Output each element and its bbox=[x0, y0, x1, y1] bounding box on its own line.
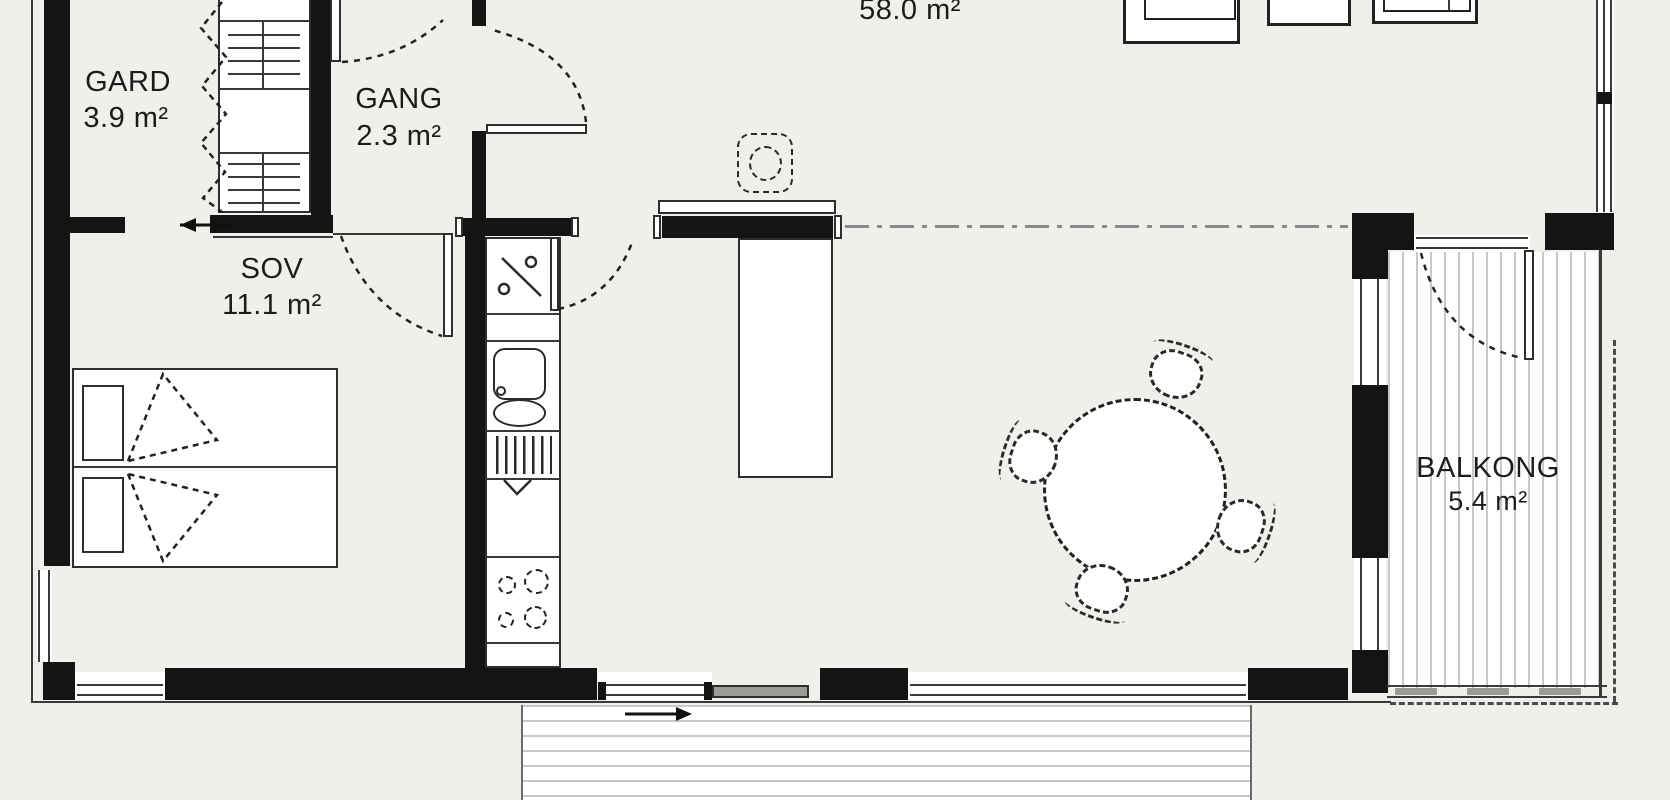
burner bbox=[524, 569, 549, 594]
window-frame-line bbox=[1610, 0, 1612, 212]
threshold-line bbox=[1416, 237, 1528, 239]
door-jamb-cap bbox=[834, 215, 842, 239]
boundary-dashed-line bbox=[1390, 702, 1618, 705]
door-leaf bbox=[486, 124, 587, 134]
window-frame-line bbox=[77, 684, 163, 686]
door-jamb-cap bbox=[455, 217, 463, 237]
balcony-rail bbox=[1387, 685, 1607, 687]
balcony-left-wall bbox=[1352, 385, 1388, 558]
wardrobe-shelf bbox=[228, 47, 300, 49]
pillow bbox=[82, 385, 124, 461]
wardrobe bbox=[218, 0, 311, 213]
bottom-wall bbox=[1248, 668, 1348, 700]
sliding-door-jamb bbox=[704, 682, 712, 700]
wardrobe-shelf-divider bbox=[220, 88, 309, 90]
door-jamb-cap bbox=[653, 215, 661, 239]
left-wall bbox=[44, 0, 70, 566]
bottom-wall-outer-face bbox=[31, 701, 1391, 703]
bed-divider bbox=[74, 466, 336, 468]
boundary-dashed-line bbox=[1613, 340, 1616, 702]
door-jamb-cap bbox=[571, 217, 579, 237]
balcony-rail-posts bbox=[1395, 688, 1600, 695]
wardrobe-shelf bbox=[228, 189, 300, 191]
door-arc bbox=[558, 240, 633, 309]
balcony-left-wall bbox=[1352, 245, 1388, 279]
floor-plan: GARD 3.9 m² GANG 2.3 m² SOV 11.1 m² 58.0… bbox=[0, 0, 1670, 800]
room-label-gard: GARD bbox=[85, 66, 171, 99]
bottom-wall bbox=[165, 668, 597, 700]
left-wall-outer-face bbox=[31, 0, 33, 703]
door-leaf bbox=[330, 0, 341, 62]
burner bbox=[498, 576, 516, 594]
door-leaf bbox=[443, 233, 453, 337]
balcony-rail bbox=[1387, 696, 1607, 698]
window-frame-line bbox=[48, 570, 50, 662]
window-frame-line bbox=[1360, 558, 1362, 650]
dining-table bbox=[1043, 398, 1227, 582]
side-table bbox=[1267, 0, 1351, 26]
hood-symbol-circle bbox=[749, 146, 782, 181]
room-area-living: 58.0 m² bbox=[859, 0, 961, 27]
counter-section-line bbox=[487, 430, 559, 432]
wardrobe-bottom-wall bbox=[210, 215, 333, 233]
bottom-wall bbox=[820, 668, 908, 700]
wardrobe-shelf bbox=[228, 73, 300, 75]
window bbox=[1354, 558, 1386, 650]
door-leaf bbox=[1524, 250, 1534, 360]
counter-section-line bbox=[487, 556, 559, 558]
counter-section-line bbox=[487, 340, 559, 342]
window-frame-line bbox=[1603, 0, 1605, 212]
wardrobe-center-post bbox=[262, 20, 264, 90]
window-frame-line bbox=[910, 694, 1246, 696]
gard-gang-wall bbox=[311, 0, 331, 215]
counter-section-line bbox=[487, 313, 559, 315]
counter-section-line bbox=[487, 478, 559, 480]
door-arc bbox=[489, 29, 586, 122]
terrace-decking bbox=[521, 705, 1252, 800]
gard-entry-stub bbox=[65, 217, 125, 233]
window-frame-line bbox=[38, 570, 40, 662]
sink-round-basin bbox=[493, 399, 546, 427]
room-label-balkong: BALKONG bbox=[1416, 452, 1560, 485]
window-frame-line bbox=[600, 694, 710, 696]
room-area-gard: 3.9 m² bbox=[83, 102, 168, 135]
dishwasher bbox=[496, 436, 552, 474]
window-frame-line bbox=[77, 694, 163, 696]
window-mullion bbox=[1597, 92, 1612, 104]
door-arc bbox=[341, 236, 442, 336]
wardrobe-shelf-divider bbox=[220, 152, 309, 154]
island-countertop bbox=[658, 200, 836, 214]
door-arc bbox=[342, 20, 443, 62]
door-leaf bbox=[550, 237, 559, 311]
balcony-left-wall-corner bbox=[1352, 650, 1388, 693]
armchair bbox=[1123, 0, 1240, 44]
bottom-left-corner bbox=[43, 662, 75, 700]
sliding-door-panel bbox=[712, 685, 809, 698]
island-half-wall bbox=[662, 216, 833, 238]
wardrobe-shelf bbox=[228, 202, 300, 204]
wardrobe-shelf bbox=[228, 34, 300, 36]
gang-living-wall bbox=[472, 131, 486, 218]
window-frame-line bbox=[1360, 279, 1362, 385]
wardrobe-shelf bbox=[228, 60, 300, 62]
gang-living-wall-stub bbox=[472, 0, 486, 26]
wardrobe-shelf-divider bbox=[220, 20, 309, 22]
balcony-top-wall bbox=[1545, 213, 1614, 250]
armchair bbox=[1372, 0, 1478, 24]
pillow bbox=[82, 477, 124, 553]
room-area-gang: 2.3 m² bbox=[356, 120, 441, 153]
room-area-sov: 11.1 m² bbox=[222, 289, 322, 322]
threshold-line bbox=[1416, 247, 1528, 249]
threshold-line bbox=[333, 233, 445, 235]
sliding-door-jamb bbox=[598, 682, 606, 700]
balcony-right-edge bbox=[1599, 250, 1602, 698]
window-frame-line bbox=[1377, 558, 1379, 650]
threshold-line bbox=[213, 236, 333, 238]
window bbox=[1354, 279, 1386, 385]
dining-chair bbox=[1134, 325, 1222, 410]
ceiling-break-line bbox=[845, 225, 1348, 228]
window-frame-line bbox=[910, 684, 1246, 686]
burner bbox=[524, 606, 547, 629]
room-label-gang: GANG bbox=[355, 83, 442, 116]
sov-kitchen-wall bbox=[465, 233, 485, 670]
window-frame-line bbox=[600, 684, 710, 686]
wardrobe-shelf bbox=[228, 163, 300, 165]
room-label-sov: SOV bbox=[241, 253, 304, 286]
room-area-balkong: 5.4 m² bbox=[1448, 486, 1528, 517]
kitchen-island bbox=[738, 238, 833, 478]
window-frame-line bbox=[1377, 279, 1379, 385]
burner bbox=[498, 612, 514, 628]
sink-tap bbox=[496, 386, 506, 396]
counter-section-line bbox=[487, 642, 559, 644]
window-frame-line bbox=[1596, 0, 1598, 212]
wardrobe-shelf bbox=[228, 176, 300, 178]
